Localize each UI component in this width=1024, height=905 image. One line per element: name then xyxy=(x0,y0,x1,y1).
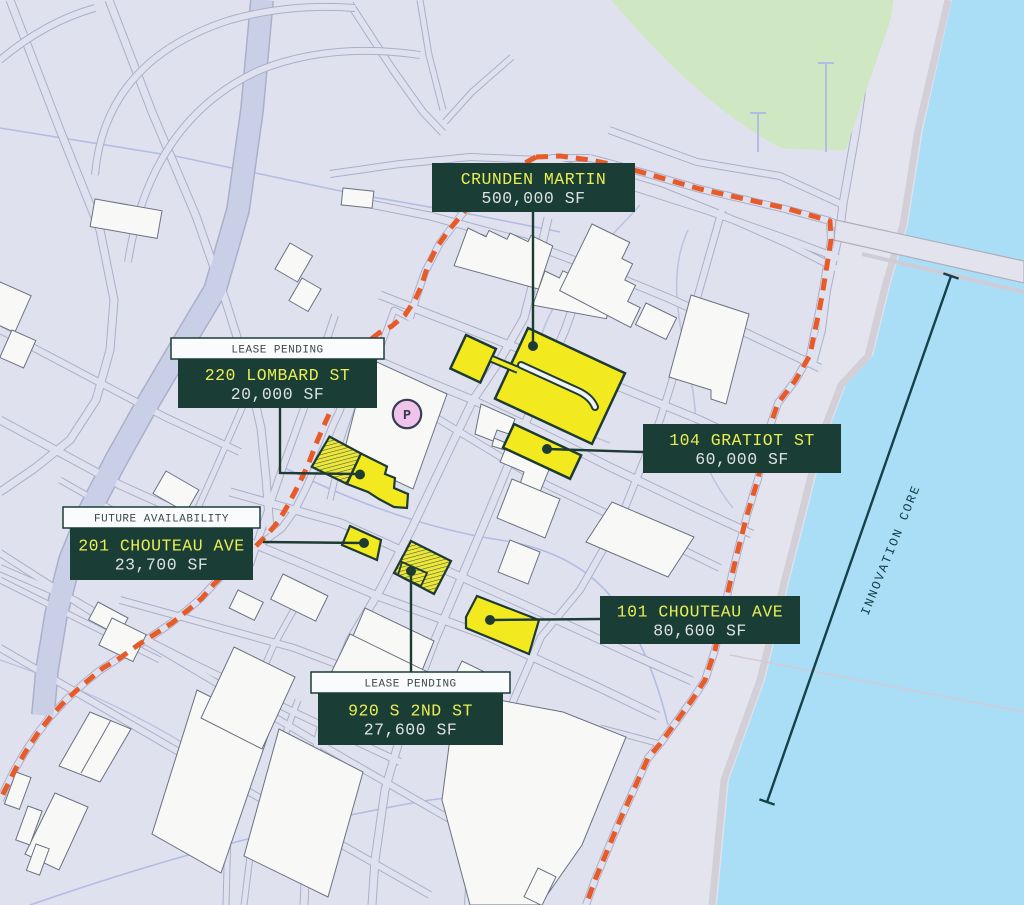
svg-text:104 GRATIOT ST: 104 GRATIOT ST xyxy=(669,431,815,450)
svg-text:20,000 SF: 20,000 SF xyxy=(231,385,325,404)
svg-text:500,000 SF: 500,000 SF xyxy=(481,189,585,208)
svg-text:220 LOMBARD ST: 220 LOMBARD ST xyxy=(205,366,351,385)
svg-text:920 S 2ND ST: 920 S 2ND ST xyxy=(348,702,473,721)
svg-text:201 CHOUTEAU AVE: 201 CHOUTEAU AVE xyxy=(78,537,244,556)
svg-text:80,600 SF: 80,600 SF xyxy=(653,622,747,641)
svg-text:LEASE PENDING: LEASE PENDING xyxy=(364,679,456,691)
svg-text:60,000 SF: 60,000 SF xyxy=(695,450,789,469)
svg-text:23,700 SF: 23,700 SF xyxy=(115,556,209,575)
svg-text:CRUNDEN MARTIN: CRUNDEN MARTIN xyxy=(461,170,607,189)
svg-text:FUTURE AVAILABILITY: FUTURE AVAILABILITY xyxy=(94,514,229,526)
svg-text:101 CHOUTEAU AVE: 101 CHOUTEAU AVE xyxy=(617,603,783,622)
svg-text:LEASE PENDING: LEASE PENDING xyxy=(231,345,323,357)
svg-text:P: P xyxy=(403,409,411,424)
svg-text:27,600 SF: 27,600 SF xyxy=(364,721,458,740)
